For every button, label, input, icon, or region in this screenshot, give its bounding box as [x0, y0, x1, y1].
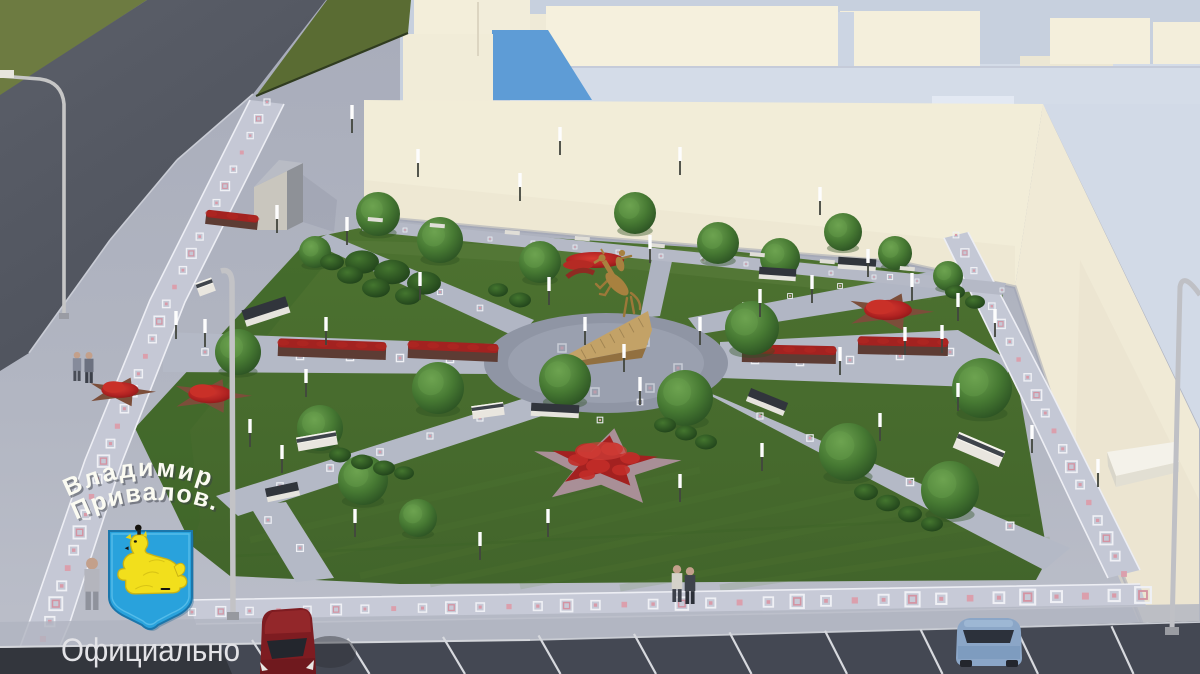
svg-text:Официально: Официально: [61, 632, 240, 668]
